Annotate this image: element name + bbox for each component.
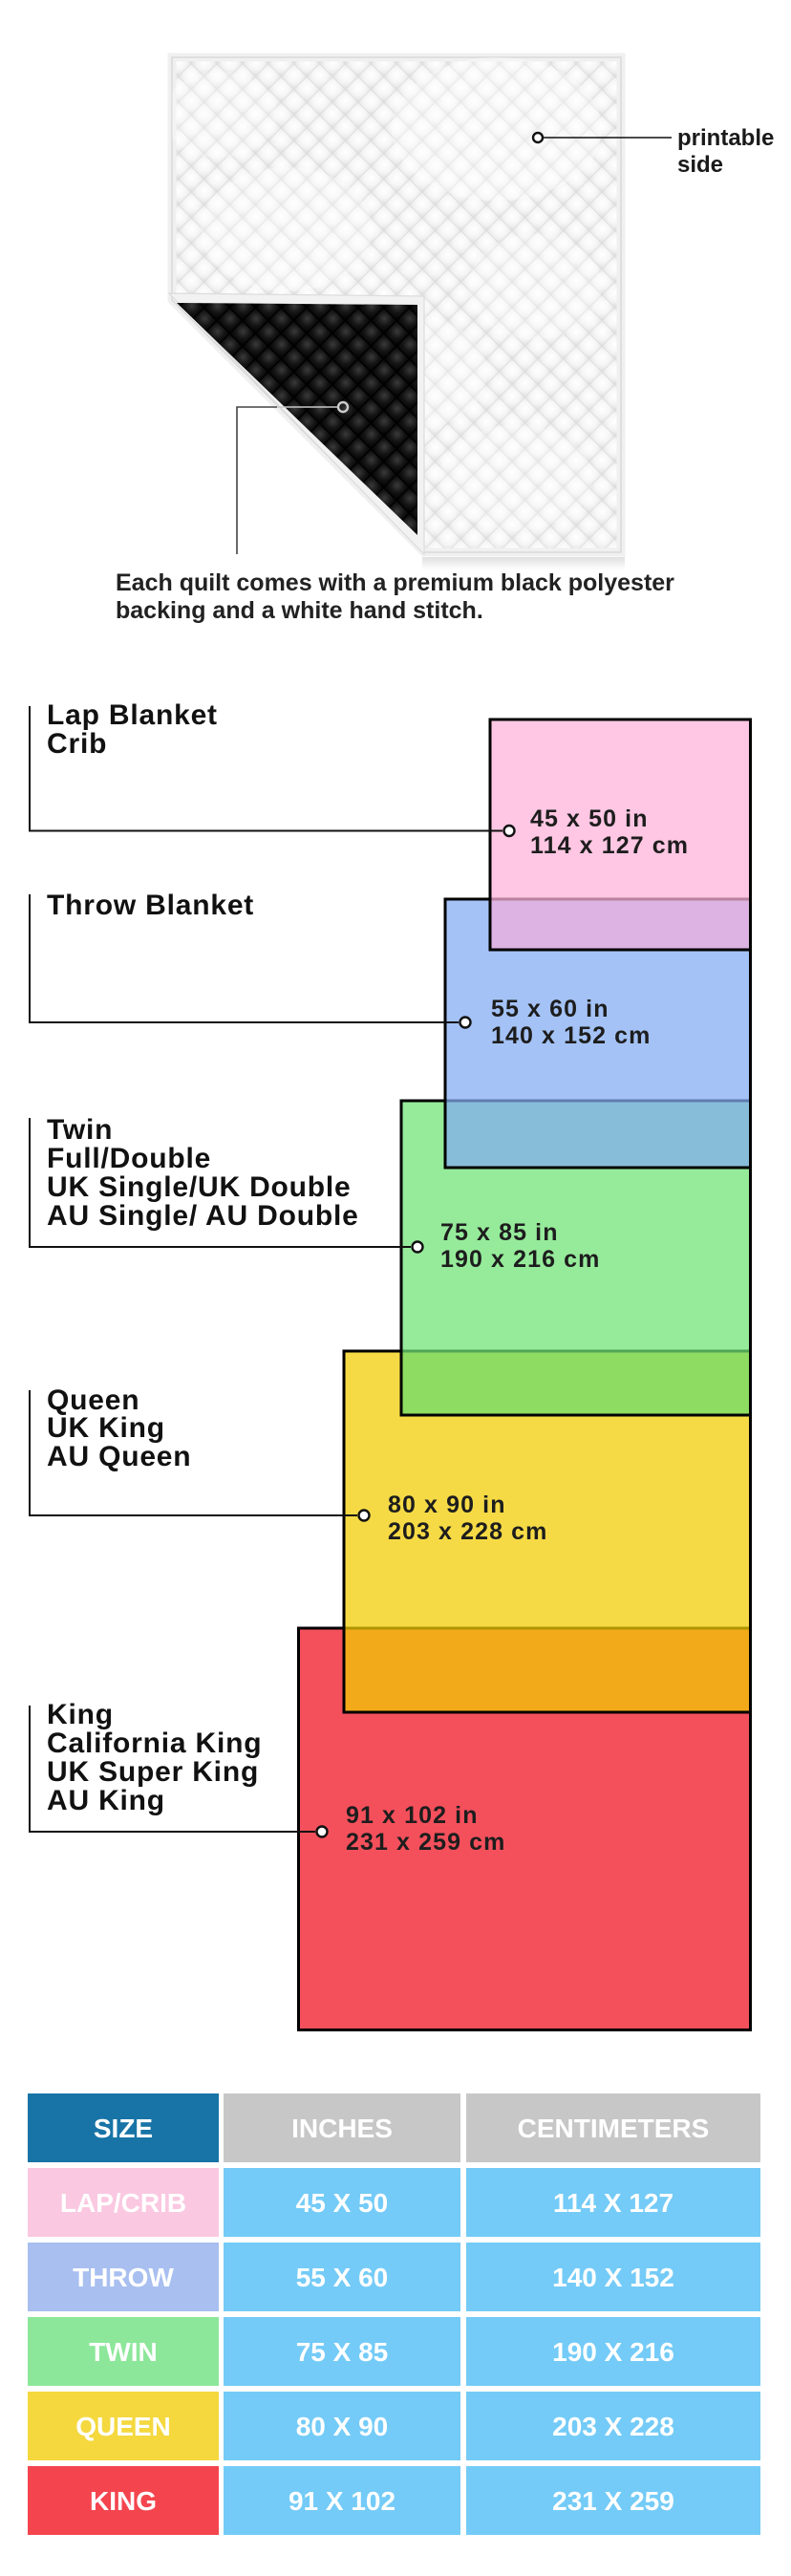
svg-text:80 X 90: 80 X 90: [296, 2412, 389, 2441]
svg-text:King: King: [47, 1699, 114, 1730]
svg-text:Lap Blanket: Lap Blanket: [47, 699, 218, 731]
svg-text:190 x 216 cm: 190 x 216 cm: [440, 1246, 601, 1273]
svg-text:55 x 60 in: 55 x 60 in: [491, 996, 609, 1022]
svg-text:203 x 228 cm: 203 x 228 cm: [388, 1518, 548, 1545]
svg-text:Each quilt comes with a premiu: Each quilt comes with a premium black po…: [116, 569, 674, 596]
svg-text:SIZE: SIZE: [94, 2114, 153, 2143]
svg-text:55 X 60: 55 X 60: [296, 2263, 389, 2292]
svg-text:Full/Double: Full/Double: [47, 1143, 211, 1174]
svg-text:QUEEN: QUEEN: [75, 2412, 171, 2441]
svg-text:Twin: Twin: [47, 1114, 113, 1146]
svg-text:UK King: UK King: [47, 1412, 165, 1444]
svg-text:KING: KING: [90, 2486, 157, 2516]
svg-text:190 X 216: 190 X 216: [552, 2337, 674, 2367]
svg-text:91 X 102: 91 X 102: [289, 2486, 395, 2516]
svg-text:INCHES: INCHES: [291, 2114, 393, 2143]
svg-text:45 x 50 in: 45 x 50 in: [530, 805, 649, 832]
svg-text:75 x 85 in: 75 x 85 in: [440, 1219, 559, 1246]
svg-text:AU Queen: AU Queen: [47, 1441, 191, 1472]
svg-text:231 X 259: 231 X 259: [552, 2486, 674, 2516]
svg-text:203 X 228: 203 X 228: [552, 2412, 674, 2441]
svg-text:45 X 50: 45 X 50: [296, 2188, 389, 2218]
svg-text:UK Super King: UK Super King: [47, 1756, 259, 1788]
svg-text:140 x 152 cm: 140 x 152 cm: [491, 1022, 652, 1049]
svg-text:TWIN: TWIN: [89, 2337, 158, 2367]
svg-text:91 x 102 in: 91 x 102 in: [346, 1802, 479, 1829]
svg-text:California King: California King: [47, 1728, 262, 1759]
svg-text:114 X 127: 114 X 127: [553, 2188, 673, 2218]
svg-text:backing and a white hand stitc: backing and a white hand stitch.: [116, 597, 483, 624]
svg-text:CENTIMETERS: CENTIMETERS: [518, 2114, 710, 2143]
svg-text:Crib: Crib: [47, 728, 107, 760]
svg-text:231 x 259 cm: 231 x 259 cm: [346, 1829, 506, 1856]
svg-text:AU King: AU King: [47, 1785, 165, 1816]
svg-text:side: side: [677, 152, 723, 178]
svg-text:75 X 85: 75 X 85: [296, 2337, 389, 2367]
svg-text:LAP/CRIB: LAP/CRIB: [60, 2188, 186, 2218]
svg-text:UK Single/UK Double: UK Single/UK Double: [47, 1171, 352, 1203]
svg-text:140 X 152: 140 X 152: [552, 2263, 674, 2292]
svg-text:Throw Blanket: Throw Blanket: [47, 890, 254, 921]
svg-text:AU Single/ AU Double: AU Single/ AU Double: [47, 1200, 359, 1232]
svg-text:THROW: THROW: [73, 2263, 174, 2292]
svg-text:printable: printable: [677, 125, 774, 151]
svg-text:80 x 90 in: 80 x 90 in: [388, 1492, 506, 1518]
svg-text:114 x 127 cm: 114 x 127 cm: [530, 832, 689, 859]
